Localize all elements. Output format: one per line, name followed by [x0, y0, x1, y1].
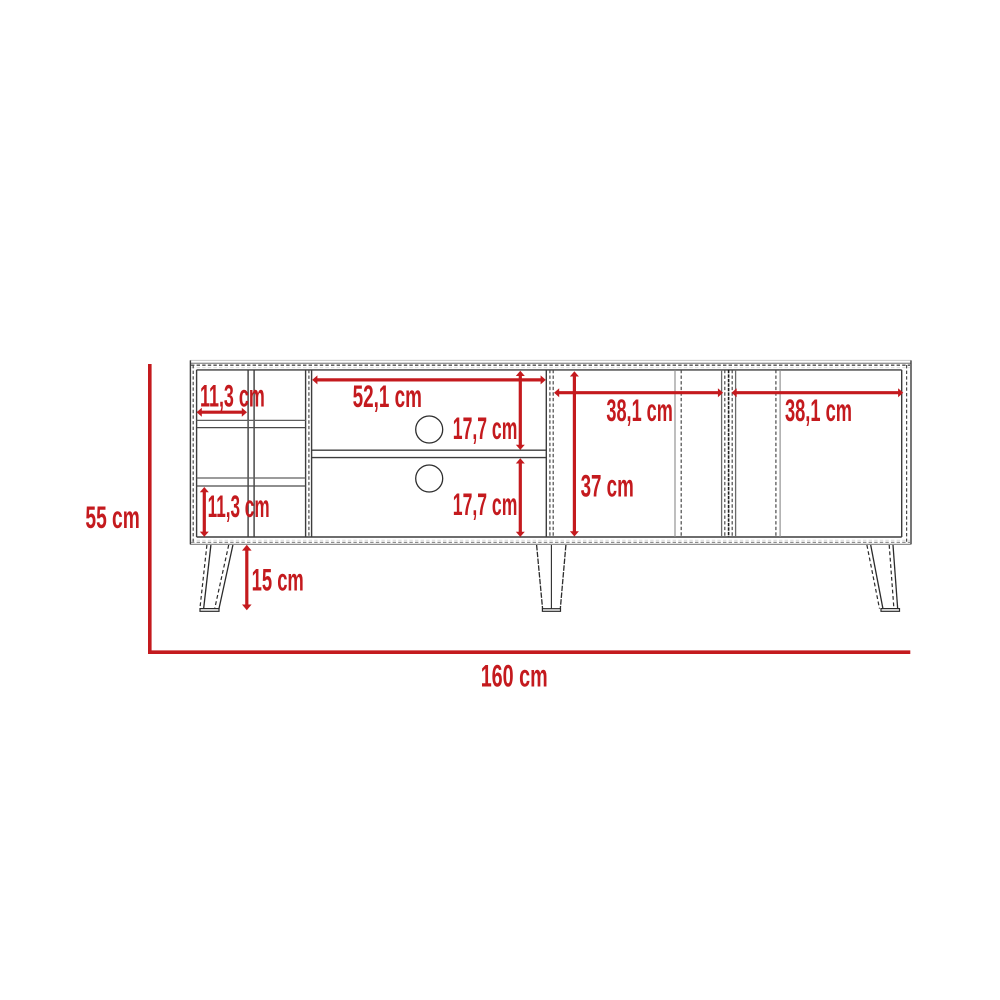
svg-text:11,3 cm: 11,3 cm — [200, 379, 265, 413]
svg-text:17,7 cm: 17,7 cm — [453, 488, 518, 523]
svg-text:38,1 cm: 38,1 cm — [785, 394, 852, 428]
svg-text:15 cm: 15 cm — [252, 564, 304, 598]
svg-text:37 cm: 37 cm — [581, 468, 634, 504]
svg-text:38,1 cm: 38,1 cm — [606, 394, 672, 428]
svg-text:55 cm: 55 cm — [85, 499, 139, 535]
svg-text:52,1 cm: 52,1 cm — [353, 378, 422, 414]
svg-text:160 cm: 160 cm — [481, 658, 548, 694]
svg-text:11,3 cm: 11,3 cm — [208, 489, 270, 524]
svg-text:17,7 cm: 17,7 cm — [453, 412, 518, 447]
